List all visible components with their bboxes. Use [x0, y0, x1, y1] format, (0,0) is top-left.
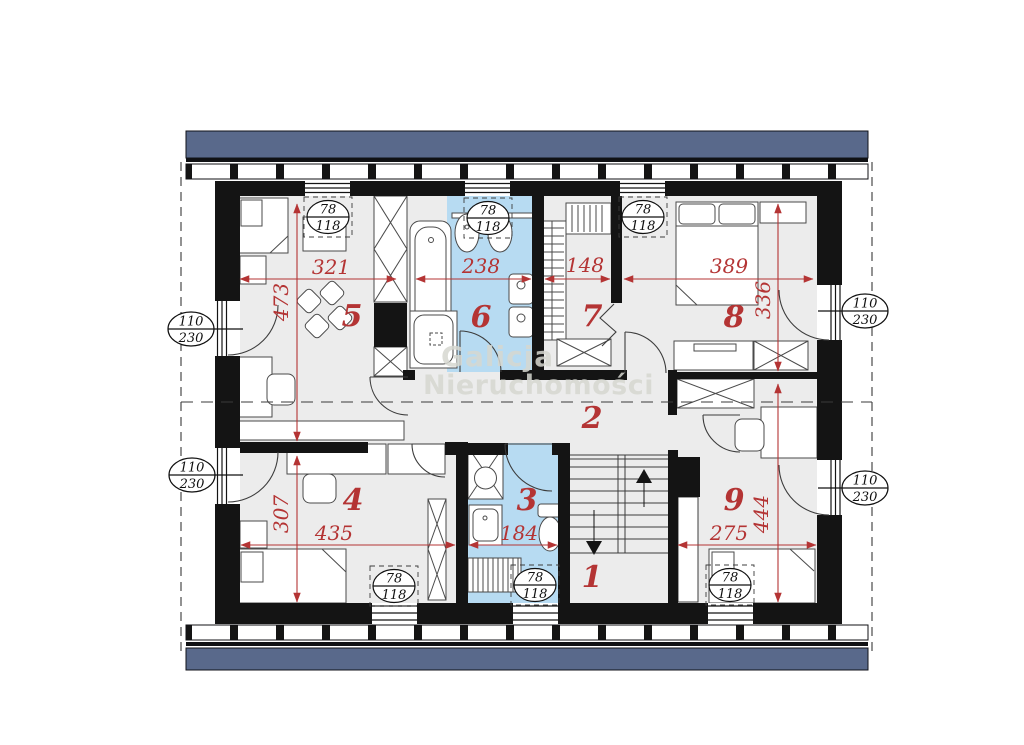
- room-number-9: 9: [724, 483, 745, 518]
- dimension-label: 435: [314, 521, 353, 545]
- room-number-1: 1: [582, 560, 603, 595]
- svg-text:118: 118: [316, 219, 341, 234]
- window-right-room8: [817, 285, 842, 340]
- svg-text:118: 118: [631, 219, 656, 234]
- window-bottom-room9: [708, 603, 753, 624]
- floor-plan-canvas: 321 238 148 389 435 184 275 473 307 336 …: [0, 0, 1024, 745]
- svg-text:110: 110: [853, 474, 878, 489]
- room-number-6: 6: [471, 300, 492, 335]
- svg-text:78: 78: [635, 203, 652, 218]
- dimension-label: 336: [751, 281, 775, 319]
- svg-text:78: 78: [527, 571, 544, 586]
- svg-text:230: 230: [179, 477, 205, 492]
- svg-text:118: 118: [382, 588, 407, 603]
- svg-text:78: 78: [320, 203, 337, 218]
- svg-text:118: 118: [476, 220, 501, 235]
- dimension-label: 389: [710, 254, 748, 278]
- svg-text:78: 78: [722, 571, 739, 586]
- room-number-3: 3: [517, 483, 538, 518]
- dimension-label: 184: [500, 521, 538, 545]
- watermark-line-1: Galicja: [441, 340, 554, 373]
- roof-edge-bottom: [186, 625, 868, 670]
- window-top-room5: [305, 181, 350, 196]
- window-top-bath6: [465, 181, 510, 196]
- roof-edge-top: [186, 131, 868, 179]
- dimension-label: 444: [749, 495, 773, 534]
- room-number-2: 2: [581, 401, 603, 436]
- window-left-room4: [215, 448, 240, 504]
- window-top-room8: [620, 181, 665, 196]
- wall-exterior-left: [215, 181, 240, 301]
- watermark-line-2: Nieruchomości: [423, 370, 654, 401]
- wall-exterior-right: [817, 196, 842, 285]
- svg-text:110: 110: [179, 315, 204, 330]
- room-number-8: 8: [723, 300, 745, 335]
- room-number-5: 5: [342, 299, 363, 334]
- dimension-label: 473: [269, 283, 293, 322]
- window-bottom-bath3: [513, 603, 558, 624]
- dimension-label: 238: [461, 254, 500, 278]
- dimension-label: 307: [269, 495, 293, 533]
- svg-text:230: 230: [178, 331, 204, 346]
- svg-text:110: 110: [853, 297, 878, 312]
- svg-text:110: 110: [180, 461, 205, 476]
- svg-text:230: 230: [852, 313, 878, 328]
- svg-text:78: 78: [386, 572, 403, 587]
- svg-text:230: 230: [852, 490, 878, 505]
- room-number-4: 4: [343, 483, 364, 518]
- svg-text:118: 118: [718, 587, 743, 602]
- svg-text:118: 118: [523, 587, 548, 602]
- room-number-7: 7: [582, 299, 603, 334]
- dimension-label: 148: [566, 253, 604, 277]
- svg-text:78: 78: [480, 204, 497, 219]
- dimension-label: 321: [312, 255, 350, 279]
- dimension-label: 275: [709, 521, 748, 545]
